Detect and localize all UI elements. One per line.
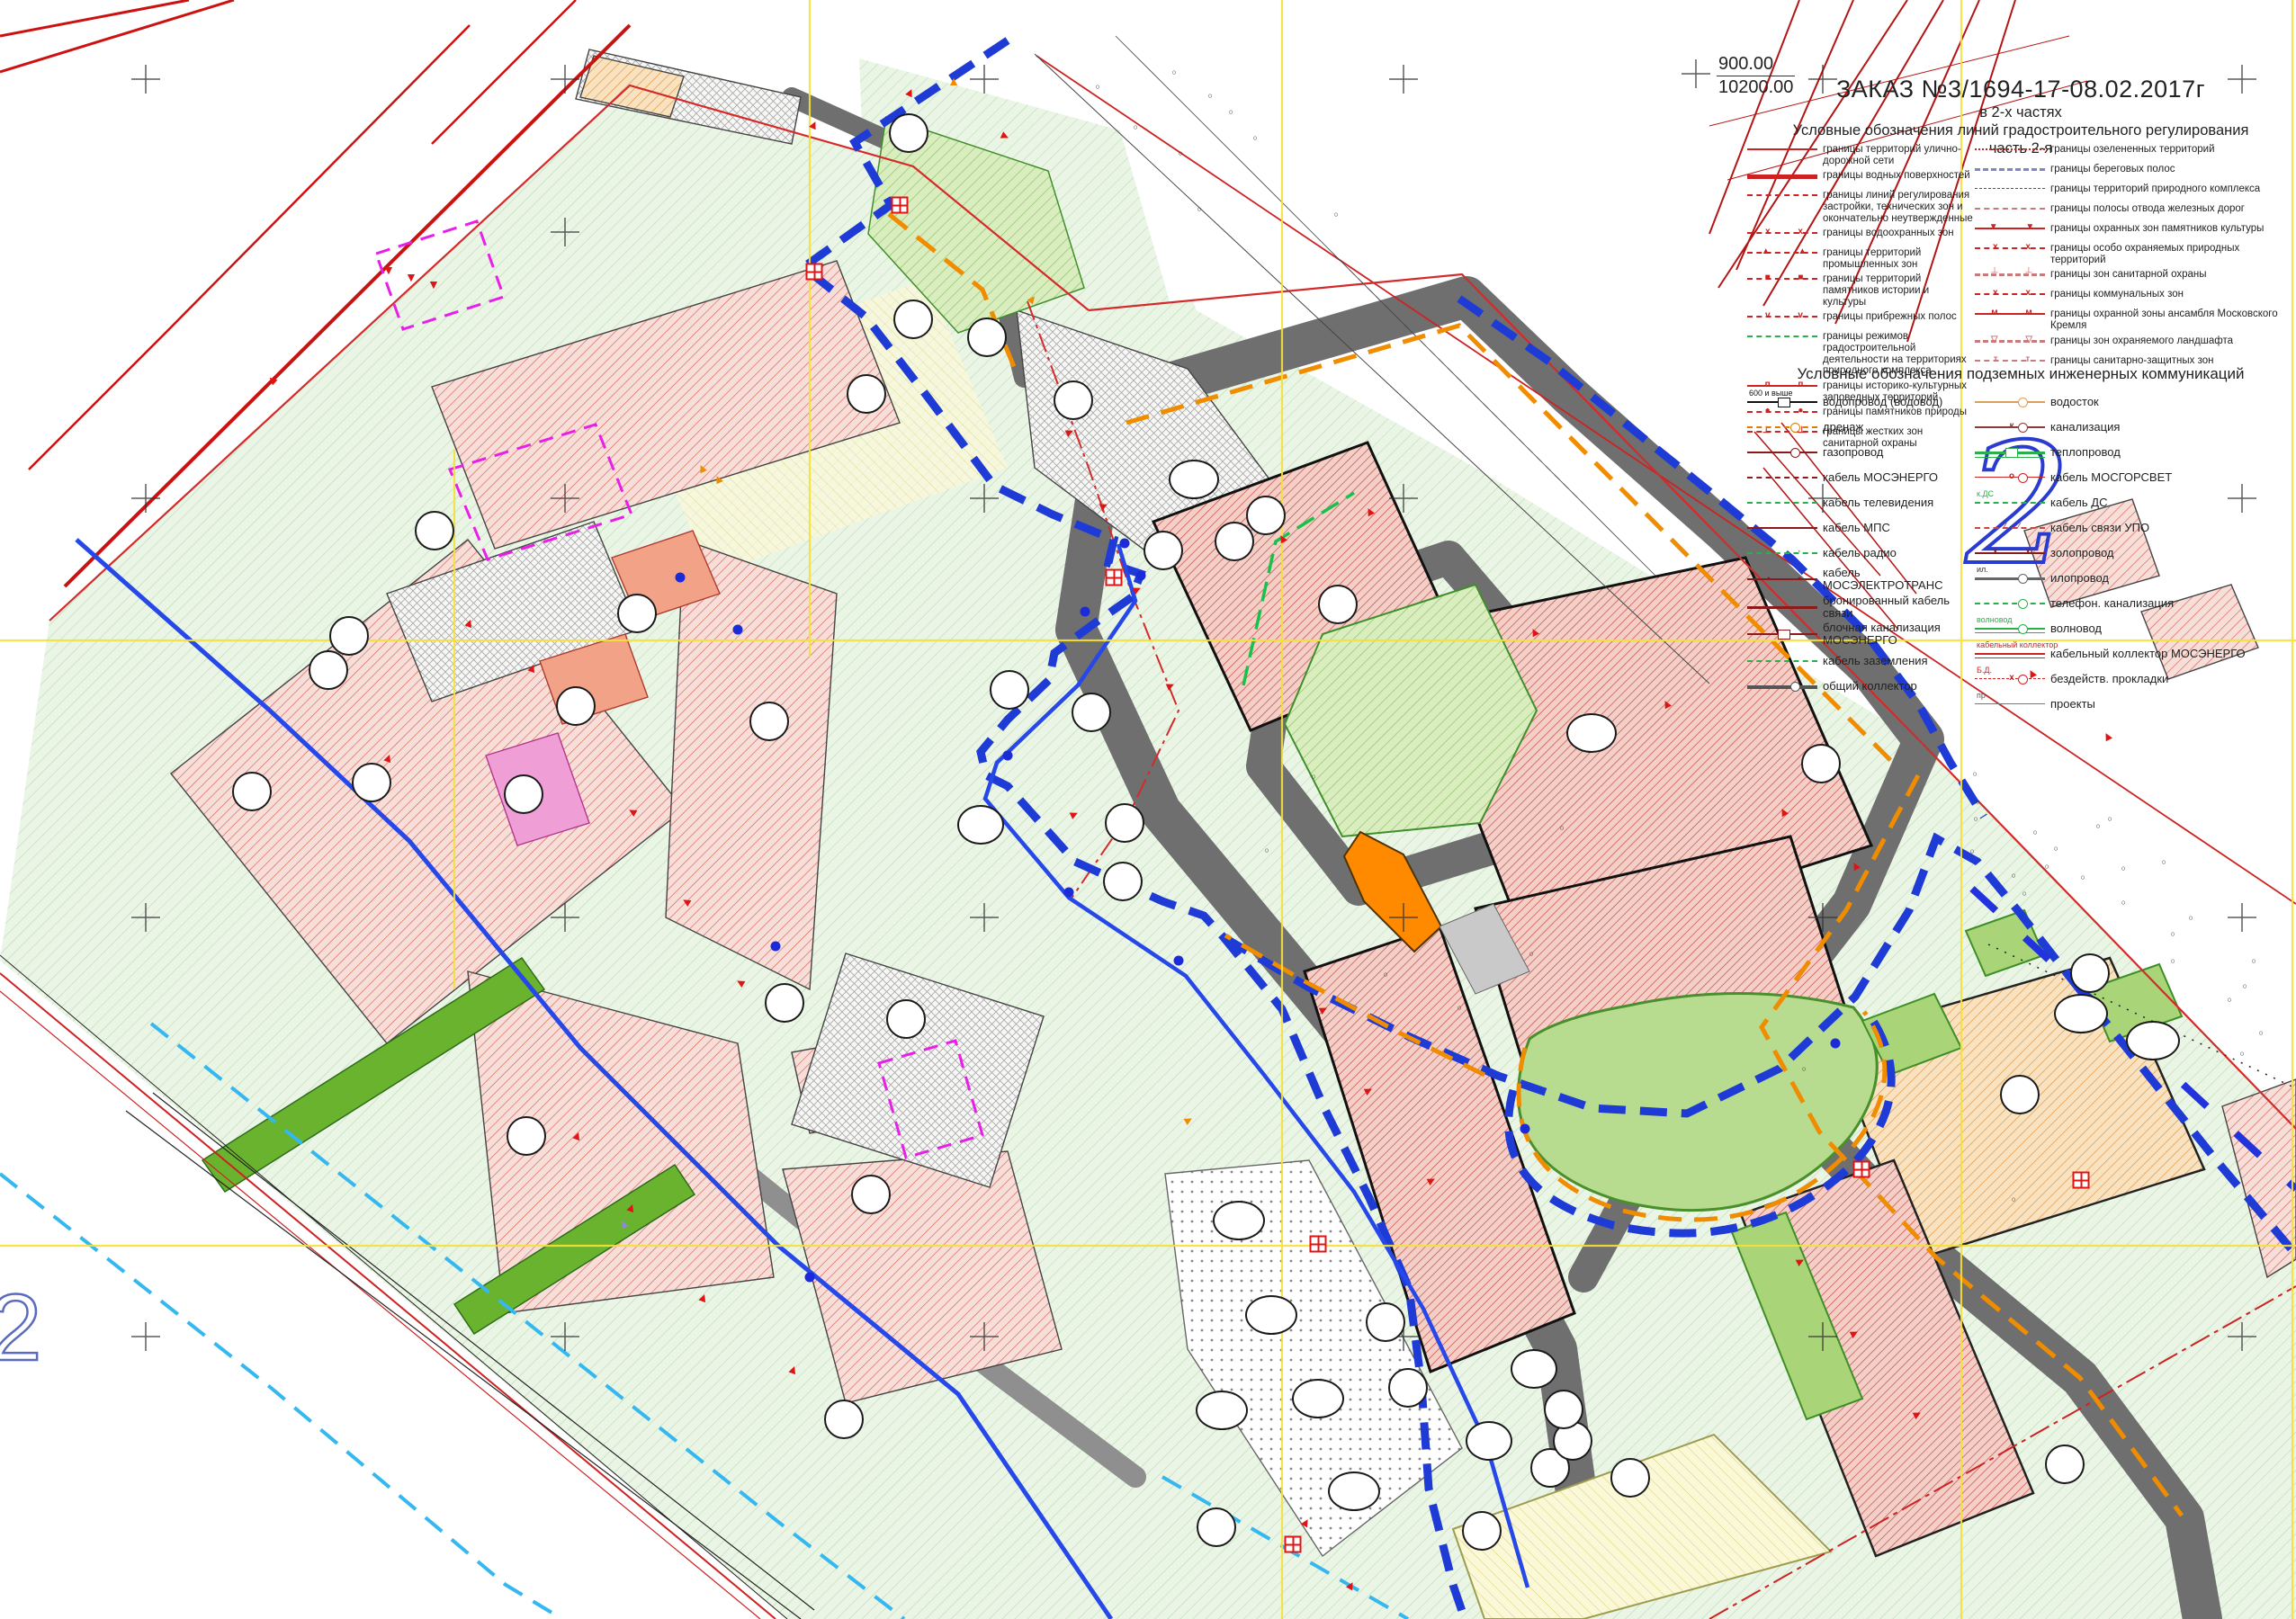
circled-marker — [415, 511, 454, 550]
survey-point-dot — [805, 1273, 815, 1283]
survey-point-dot — [1136, 571, 1146, 581]
legend-symbol — [1745, 420, 1823, 434]
legend-row: ∕∕ кабель связи УПО — [1973, 516, 2296, 540]
legend-row: границы территорий улично-дорожной сети — [1745, 142, 1973, 166]
legend-symbol — [1973, 142, 2050, 157]
circled-marker — [1544, 1390, 1583, 1429]
elevation-label — [2226, 995, 2233, 1008]
legend-label: кабель МОСЭЛЕКТРОТРАНС — [1823, 567, 1973, 593]
legend-row: к канализация — [1973, 416, 2296, 439]
elevation-label — [1382, 970, 1389, 983]
elevation-label — [1456, 1003, 1463, 1016]
elevation-label — [1332, 210, 1340, 223]
circled-marker — [309, 650, 348, 690]
circled-marker — [990, 670, 1029, 710]
circled-marker — [824, 1400, 864, 1439]
legend-label: границы береговых полос — [2050, 162, 2175, 175]
legend-row: ■ ■ границы территорий памятников истори… — [1745, 272, 1973, 308]
elevation-label — [2257, 1028, 2265, 1042]
legend-label: кабель связи УПО — [2050, 522, 2149, 534]
legend-symbol: ил. — [1973, 571, 2050, 586]
legend-row: ▽ ▽ границы зон охраняемого ландшафта — [1973, 334, 2296, 352]
circled-marker — [967, 318, 1007, 357]
legend-label: границы территорий промышленных зон — [1823, 246, 1973, 270]
legend-symbol: пр — [1973, 697, 2050, 711]
legend-row: о кабель МОСГОРСВЕТ — [1973, 466, 2296, 489]
elevation-label — [2238, 1049, 2246, 1062]
legend-label: границы водоохранных зон — [1823, 226, 1954, 239]
circled-marker — [765, 983, 804, 1023]
circled-marker — [1213, 1201, 1265, 1240]
elevation-label — [1974, 797, 1981, 810]
legend-symbol: 600 и выше — [1745, 395, 1823, 409]
circled-marker — [1466, 1421, 1512, 1461]
legend-label: границы территорий природного комплекса — [2050, 182, 2260, 195]
legend-row: границы территорий природного комплекса — [1973, 182, 2296, 200]
circled-marker — [1054, 380, 1093, 420]
utility-box-marker — [1310, 1236, 1327, 1253]
circled-marker — [886, 999, 926, 1039]
elevation-label — [2031, 827, 2039, 841]
survey-point-dot — [1003, 751, 1013, 761]
legend-row: дренаж — [1745, 416, 1973, 439]
circled-marker — [851, 1175, 891, 1214]
circled-marker — [1292, 1379, 1344, 1418]
elevation-label — [2120, 898, 2127, 911]
legend-symbol: ┴ ┴ — [1973, 267, 2050, 282]
elevation-label — [1132, 122, 1139, 136]
circled-marker — [1215, 522, 1254, 561]
circled-marker — [329, 616, 369, 656]
elevation-label — [1170, 67, 1178, 81]
legend-symbol: хБ.Д. — [1973, 672, 2050, 686]
elevation-label — [2250, 956, 2257, 970]
circled-marker — [1801, 744, 1841, 783]
legend-label: общий коллектор — [1823, 680, 1917, 693]
legend-row: кабель МПС — [1745, 516, 1973, 540]
legend-row: хБ.Д. бездейств. прокладки — [1973, 667, 2296, 691]
legend-label: границы полосы отвода железных дорог — [2050, 201, 2245, 215]
legend-label: телефон. канализация — [2050, 597, 2174, 610]
elevation-label — [1206, 91, 1214, 104]
coordinate-x: 900.00 — [1717, 54, 1795, 76]
legend-symbol — [1973, 445, 2050, 460]
circled-marker — [232, 772, 272, 811]
elevation-label — [1971, 769, 1978, 783]
legend-symbol — [1745, 654, 1823, 668]
legend-row: х х золопровод — [1973, 541, 2296, 565]
legend-symbol: х х — [1745, 226, 1823, 240]
legend-label: границы охранных зон памятников культуры — [2050, 221, 2264, 235]
legend-symbol — [1745, 600, 1823, 614]
legend-row: общий коллектор — [1745, 675, 1973, 698]
elevation-label — [2043, 862, 2050, 875]
circled-marker — [1566, 713, 1617, 753]
legend-symbol: волновод — [1973, 622, 2050, 636]
utility-box-marker — [892, 197, 909, 214]
legend-row: бронированный кабель связи — [1745, 595, 1973, 621]
utility-box-marker — [1853, 1161, 1870, 1178]
elevation-label — [1196, 204, 1203, 218]
legend-label: границы территорий памятников истории и … — [1823, 272, 1973, 308]
circled-marker — [1103, 862, 1143, 901]
survey-point-dot — [1120, 539, 1130, 549]
legend-row: ▲ ▲ границы территорий промышленных зон — [1745, 246, 1973, 270]
survey-point-dot — [771, 942, 781, 952]
elevation-label — [2010, 871, 2017, 884]
legend-symbol — [1745, 329, 1823, 344]
circled-marker — [749, 702, 789, 741]
circled-marker — [1366, 1302, 1405, 1342]
utility-box-marker — [806, 264, 823, 281]
legend-symbol — [1973, 201, 2050, 216]
circled-marker — [2045, 1445, 2085, 1484]
circled-marker — [556, 686, 596, 726]
legend-row: теплопровод — [1973, 441, 2296, 464]
legend-symbol: ▼ ▼ — [1973, 221, 2050, 236]
legend-symbol — [1973, 596, 2050, 611]
legend-label: канализация — [2050, 421, 2120, 434]
legend-label: водосток — [2050, 396, 2099, 408]
elevation-label — [1227, 107, 1234, 121]
circled-marker — [1197, 1507, 1236, 1547]
survey-point-dot — [676, 573, 686, 583]
legend-symbol: к — [1973, 420, 2050, 434]
red-triangle-marker: ▲ — [405, 273, 417, 285]
orange-triangle-marker: ▲ — [947, 75, 960, 87]
legend-symbol — [1973, 182, 2050, 196]
legend-row: - - кабель МОСЭЛЕКТРОТРАНС — [1745, 567, 1973, 593]
legend-row: волновод волновод — [1973, 617, 2296, 640]
legend-row: · · кабель радио — [1745, 541, 1973, 565]
legend-symbol — [1745, 521, 1823, 535]
comms-legend: 600 и выше водопровод (водовод) дренаж г… — [1745, 390, 2296, 718]
elevation-label — [2010, 1194, 2017, 1208]
circled-marker — [1318, 585, 1358, 624]
legend-symbol: · · — [1745, 546, 1823, 560]
legend-symbol — [1745, 470, 1823, 485]
circled-marker — [1388, 1368, 1428, 1408]
elevation-label — [1094, 82, 1101, 95]
elevation-label — [1177, 148, 1184, 162]
elevation-label — [1972, 814, 1979, 827]
survey-point-dot — [1174, 956, 1184, 966]
legend-symbol — [1973, 162, 2050, 176]
circled-marker — [889, 113, 928, 153]
legend-label: водопровод (водовод) — [1823, 396, 1942, 408]
circled-marker — [1245, 1295, 1297, 1335]
legend-label: теплопровод — [2050, 446, 2121, 459]
legend-symbol: х х — [1973, 546, 2050, 560]
legend-row: ▼ ▼ границы охранных зон памятников куль… — [1973, 221, 2296, 239]
elevation-label — [1528, 949, 1535, 962]
elevation-label — [2160, 857, 2167, 871]
circled-marker — [352, 763, 391, 802]
legend-row: к.ДС кабель ДС — [1973, 491, 2296, 514]
circled-marker — [1144, 531, 1183, 570]
elevation-label — [2094, 821, 2102, 835]
red-triangle-marker: ▲ — [382, 265, 395, 278]
lines-legend-title: Условные обозначения линий градостроител… — [1745, 122, 2296, 139]
circled-marker — [1196, 1391, 1248, 1430]
legend-row: границы линий регулирования застройки, т… — [1745, 188, 1973, 224]
legend-label: границы водных поверхностей — [1823, 168, 1970, 182]
legend-symbol: x x — [1973, 241, 2050, 255]
legend-row: кабель заземления — [1745, 649, 1973, 673]
circled-marker — [617, 594, 657, 633]
legend-label: кабель МОСГОРСВЕТ — [2050, 471, 2172, 484]
legend-label: илопровод — [2050, 572, 2109, 585]
legend-row: кабель МОСЭНЕРГО — [1745, 466, 1973, 489]
utility-box-marker — [2073, 1172, 2090, 1189]
circled-marker — [1105, 803, 1144, 843]
legend-label: блочная канализация МОСЭНЕРГО — [1823, 622, 1973, 648]
legend-row: ил. илопровод — [1973, 567, 2296, 590]
circled-marker — [1511, 1349, 1557, 1389]
circled-marker — [847, 374, 886, 414]
legend-symbol — [1745, 142, 1823, 157]
legend-label: границы линий регулирования застройки, т… — [1823, 188, 1973, 224]
elevation-label — [2106, 814, 2113, 827]
legend-label: границы санитарно-защитных зон — [2050, 353, 2214, 367]
legend-label: кабель ДС — [2050, 496, 2107, 509]
legend-row: границы озелененных территорий — [1973, 142, 2296, 160]
legend-symbol: м м — [1973, 307, 2050, 321]
legend-row: телефон. канализация — [1973, 592, 2296, 615]
legend-label: волновод — [2050, 622, 2102, 635]
legend-symbol — [1745, 679, 1823, 693]
legend-row: блочная канализация МОСЭНЕРГО — [1745, 622, 1973, 648]
circled-marker — [2070, 953, 2110, 993]
legend-label: газопровод — [1823, 446, 1883, 459]
elevation-label — [2120, 863, 2127, 877]
legend-label: золопровод — [2050, 547, 2114, 559]
legend-symbol: ▲ ▲ — [1745, 246, 1823, 260]
circled-marker — [893, 300, 933, 339]
elevation-label — [2021, 889, 2028, 902]
legend-symbol — [1745, 496, 1823, 510]
circled-marker — [504, 774, 543, 814]
circled-marker — [1072, 693, 1111, 732]
legend-symbol: ∕∕ — [1973, 521, 2050, 535]
legend-symbol — [1745, 188, 1823, 202]
circled-marker — [1462, 1511, 1502, 1551]
legend-row: 600 и выше водопровод (водовод) — [1745, 390, 1973, 414]
circled-marker — [1328, 1471, 1380, 1511]
legend-symbol: ▽ ▽ — [1973, 334, 2050, 348]
legend-symbol: v v — [1745, 309, 1823, 324]
legend-symbol: к.ДС — [1973, 496, 2050, 510]
legend-row: кабель телевидения — [1745, 491, 1973, 514]
legend-row: v v границы прибрежных полос — [1745, 309, 1973, 327]
elevation-label — [1310, 772, 1317, 785]
legend-symbol — [1973, 395, 2050, 409]
legend-symbol — [1745, 445, 1823, 460]
legend-label: границы зон охраняемого ландшафта — [2050, 334, 2233, 347]
legend-row: газопровод — [1745, 441, 1973, 464]
elevation-label — [2169, 956, 2176, 970]
legend-label: кабель телевидения — [1823, 496, 1933, 509]
elevation-label — [2169, 929, 2176, 943]
legend-label: кабель МПС — [1823, 522, 1890, 534]
order-parts: в 2-х частях — [1745, 104, 2296, 121]
legend-label: бездейств. прокладки — [2050, 673, 2168, 685]
survey-point-dot — [1831, 1039, 1841, 1049]
legend-label: дренаж — [1823, 421, 1863, 434]
legend-symbol: - - — [1745, 572, 1823, 586]
legend-symbol: х х — [1973, 287, 2050, 301]
legend-label: границы особо охраняемых природных терри… — [2050, 241, 2296, 265]
elevation-label — [1251, 133, 1259, 147]
elevation-label — [1558, 823, 1565, 836]
legend-label: кабельный коллектор МОСЭНЕРГО — [2050, 648, 2246, 660]
legend-label: кабель МОСЭНЕРГО — [1823, 471, 1938, 484]
survey-point-dot — [1520, 1124, 1530, 1134]
elevation-label — [2079, 872, 2086, 886]
legend-symbol: кабельный коллектор — [1973, 647, 2050, 661]
elevation-label — [2187, 913, 2194, 926]
elevation-label — [2241, 981, 2248, 995]
legend-symbol: ■ ■ — [1745, 272, 1823, 286]
legend-row: кабельный коллектор кабельный коллектор … — [1973, 642, 2296, 666]
circled-marker — [957, 805, 1004, 845]
circled-marker — [1246, 496, 1286, 535]
red-triangle-marker: ▲ — [427, 280, 440, 292]
survey-point-dot — [733, 625, 743, 635]
legend-symbol — [1745, 168, 1823, 183]
circled-marker — [2126, 1021, 2180, 1060]
order-title: ЗАКАЗ №3/1694-17-08.02.2017г — [1745, 76, 2296, 103]
utility-box-marker — [1106, 569, 1123, 586]
circled-marker — [2000, 1075, 2040, 1114]
legend-row: x x границы особо охраняемых природных т… — [1973, 241, 2296, 265]
legend-label: кабель заземления — [1823, 655, 1928, 667]
legend-row: х х границы коммунальных зон — [1973, 287, 2296, 305]
legend-label: границы озелененных территорий — [2050, 142, 2215, 156]
plan-sheet: 2 2 900.00 10200.00 ▲▲▲▲▲▲▲▲▲▲▲▲▲▲▲▲▲▲▲▲… — [0, 0, 2296, 1619]
survey-point-dot — [1081, 607, 1090, 617]
legend-row: х х границы водоохранных зон — [1745, 226, 1973, 244]
survey-point-dot — [1064, 888, 1074, 898]
legend-label: бронированный кабель связи — [1823, 595, 1973, 621]
legend-row: границы водных поверхностей — [1745, 168, 1973, 186]
legend-label: границы прибрежных полос — [1823, 309, 1957, 323]
legend-symbol: о — [1973, 470, 2050, 485]
comms-legend-title: Условные обозначения подземных инженерны… — [1745, 365, 2296, 383]
legend-row: границы береговых полос — [1973, 162, 2296, 180]
legend-label: проекты — [2050, 698, 2095, 711]
circled-marker — [2054, 994, 2108, 1033]
elevation-label — [1263, 845, 1270, 859]
legend-symbol — [1745, 627, 1823, 641]
legend-row: ┴ ┴ границы зон санитарной охраны — [1973, 267, 2296, 285]
comms-legend-left: 600 и выше водопровод (водовод) дренаж г… — [1745, 390, 1973, 718]
comms-legend-right: водосток к канализация теплопровод о каб… — [1973, 390, 2296, 718]
circled-marker — [1169, 460, 1219, 499]
legend-label: границы охранной зоны ансамбля Московско… — [2050, 307, 2296, 331]
utility-box-marker — [1285, 1536, 1302, 1553]
sheet-number: 2 — [0, 1275, 41, 1381]
legend-label: границы коммунальных зон — [2050, 287, 2184, 300]
legend-row: пр проекты — [1973, 693, 2296, 716]
circled-marker — [507, 1116, 546, 1156]
circled-marker — [1610, 1458, 1650, 1498]
legend-label: кабель радио — [1823, 547, 1897, 559]
legend-row: водосток — [1973, 390, 2296, 414]
legend-label: границы зон санитарной охраны — [2050, 267, 2207, 281]
legend-row: м м границы охранной зоны ансамбля Моско… — [1973, 307, 2296, 331]
elevation-label — [1800, 1064, 1807, 1078]
legend-label: границы территорий улично-дорожной сети — [1823, 142, 1973, 166]
legend-row: границы полосы отвода железных дорог — [1973, 201, 2296, 219]
elevation-label — [1969, 846, 1976, 860]
elevation-label — [2052, 844, 2059, 857]
